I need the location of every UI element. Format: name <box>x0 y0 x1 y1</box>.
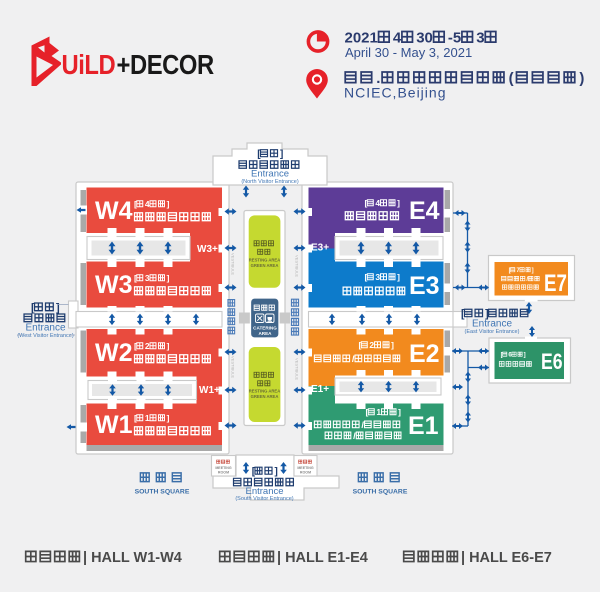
svg-text:W3+: W3+ <box>197 244 218 255</box>
svg-text:RESTING AREA: RESTING AREA <box>249 258 281 263</box>
svg-text:]: ] <box>275 467 278 478</box>
svg-text:/: / <box>353 431 356 442</box>
svg-text:E1: E1 <box>408 412 439 440</box>
svg-text:E6: E6 <box>541 350 563 374</box>
svg-text:-5: -5 <box>448 30 461 47</box>
svg-text:| HALL E1-E4: | HALL E1-E4 <box>277 550 368 566</box>
svg-text:CATERING: CATERING <box>253 326 277 331</box>
svg-text:E4: E4 <box>409 197 440 225</box>
svg-text:VESTIBULE: VESTIBULE <box>231 356 236 378</box>
svg-text:2: 2 <box>145 341 150 351</box>
svg-text:Entrance: Entrance <box>25 323 65 334</box>
svg-text:Entrance: Entrance <box>472 319 512 330</box>
svg-text:April 30 - May 3, 2021: April 30 - May 3, 2021 <box>345 45 472 60</box>
svg-text:2: 2 <box>369 340 374 350</box>
svg-text:3: 3 <box>145 273 150 283</box>
svg-text:4: 4 <box>393 30 402 47</box>
svg-text:VESTIBULE: VESTIBULE <box>295 255 300 277</box>
svg-text:E3+: E3+ <box>311 243 329 254</box>
svg-text:4: 4 <box>375 198 380 208</box>
svg-text:E3: E3 <box>409 272 440 300</box>
svg-text:W3: W3 <box>95 271 133 299</box>
svg-text:W1+: W1+ <box>199 385 220 396</box>
svg-text:]: ] <box>397 198 400 208</box>
svg-text:]: ] <box>280 149 283 160</box>
svg-text:UiLD: UiLD <box>62 48 116 80</box>
svg-text:E7: E7 <box>544 270 567 297</box>
svg-text:]: ] <box>167 199 170 209</box>
svg-text:W4: W4 <box>95 197 133 225</box>
svg-text:E2: E2 <box>409 340 440 368</box>
svg-text:NCIEC,Beijing: NCIEC,Beijing <box>344 85 446 101</box>
svg-text:(East Visitor Entrance): (East Visitor Entrance) <box>465 329 520 335</box>
svg-text:Entrance: Entrance <box>251 169 289 180</box>
svg-text:1: 1 <box>376 407 381 417</box>
svg-text:VESTIBULE: VESTIBULE <box>231 253 236 275</box>
svg-text:3: 3 <box>375 272 380 282</box>
svg-text:(West Visitor Entrance): (West Visitor Entrance) <box>17 333 74 339</box>
svg-text:GREEN AREA: GREEN AREA <box>251 263 279 268</box>
svg-text:W1: W1 <box>95 411 133 439</box>
svg-text:| HALL E6-E7: | HALL E6-E7 <box>461 550 552 566</box>
svg-text:]: ] <box>524 353 526 359</box>
svg-text:(North Visitor Entrance): (North Visitor Entrance) <box>241 179 299 185</box>
svg-text:]: ] <box>397 272 400 282</box>
svg-text:4: 4 <box>145 199 150 209</box>
svg-text:E1+: E1+ <box>311 384 329 395</box>
svg-text:]: ] <box>398 407 401 417</box>
svg-text:]: ] <box>167 273 170 283</box>
svg-text:SOUTH SQUARE: SOUTH SQUARE <box>135 489 190 496</box>
svg-text:]: ] <box>56 302 60 314</box>
svg-text:VESTIBULE: VESTIBULE <box>295 358 300 380</box>
svg-text:GREEN AREA: GREEN AREA <box>251 394 279 399</box>
svg-text:(: ( <box>509 70 514 87</box>
svg-text:]: ] <box>391 340 394 350</box>
svg-text:+DECOR: +DECOR <box>117 48 215 80</box>
svg-text:ROOM: ROOM <box>218 470 229 474</box>
svg-text:RESTING AREA: RESTING AREA <box>249 389 281 394</box>
svg-text:]: ] <box>167 413 170 423</box>
svg-text:| HALL W1-W4: | HALL W1-W4 <box>83 550 182 566</box>
svg-text:AREA: AREA <box>258 331 272 336</box>
svg-text:]: ] <box>167 341 170 351</box>
svg-text:/: / <box>352 354 355 365</box>
svg-text:2021: 2021 <box>345 30 378 47</box>
svg-text:30: 30 <box>416 30 433 47</box>
svg-text:ROOM: ROOM <box>300 470 311 474</box>
svg-text:): ) <box>579 70 584 87</box>
svg-text:/: / <box>361 420 364 431</box>
svg-text:(South Visitor Entrance): (South Visitor Entrance) <box>235 496 293 502</box>
svg-text:]: ] <box>532 268 534 274</box>
svg-text:SOUTH SQUARE: SOUTH SQUARE <box>353 489 408 496</box>
svg-text:3: 3 <box>476 30 484 47</box>
svg-text:W2: W2 <box>95 339 133 367</box>
svg-text:1: 1 <box>145 413 150 423</box>
